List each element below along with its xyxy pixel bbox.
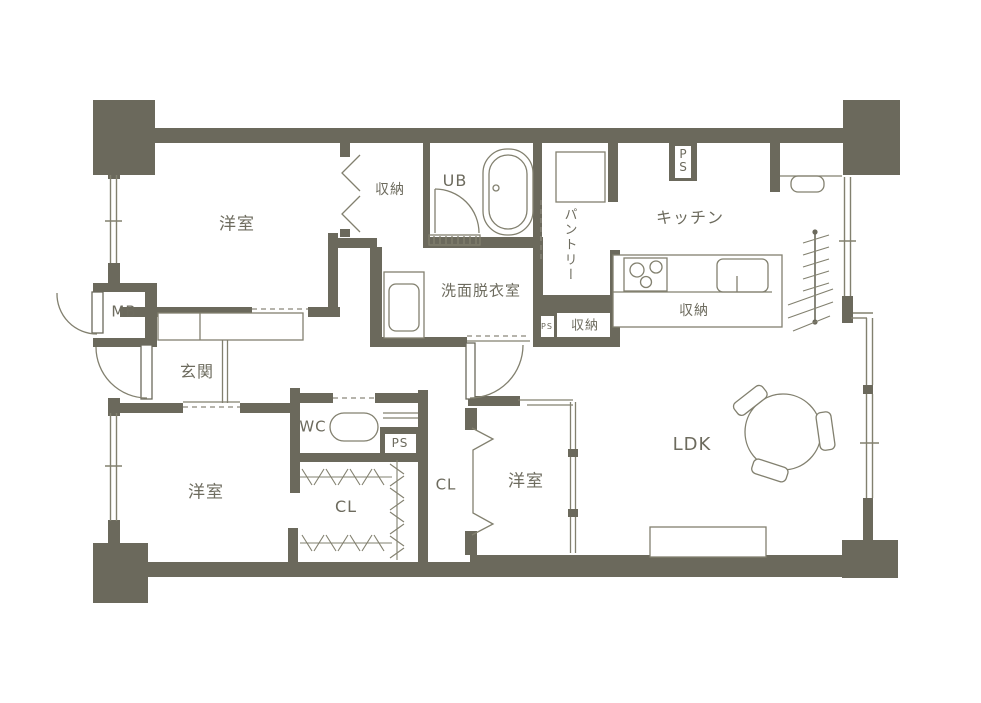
label-closet-walkin: CL	[335, 499, 357, 515]
label-storage-hall: 収納	[571, 320, 599, 333]
washing-machine-pan	[384, 272, 424, 338]
entrance-door	[96, 345, 152, 399]
ldk-door	[466, 343, 523, 399]
label-pipe-shaft-wc: PS	[392, 437, 409, 449]
label-ldk: LDK	[673, 436, 712, 454]
label-bedroom-nw: 洋室	[219, 217, 255, 234]
label-meter-box: MB	[111, 305, 136, 320]
interior-walls	[93, 140, 782, 568]
column-top-left	[93, 100, 155, 175]
sliding-door-s-bedroom	[518, 400, 573, 405]
label-bedroom-sw: 洋室	[188, 485, 224, 502]
label-pantry: パントリー	[563, 208, 576, 283]
ldk-furniture	[650, 383, 836, 557]
floor-plan-drawing	[0, 0, 981, 703]
folding-door-s-closet	[472, 428, 493, 535]
label-unit-bath: UB	[443, 173, 468, 189]
sliding-partition-ldk	[568, 402, 578, 553]
window-nw-bedroom	[105, 175, 122, 263]
window-ldk-right	[851, 313, 879, 498]
refrigerator-space	[556, 152, 605, 202]
sliding-door-sw-bedroom	[183, 402, 240, 407]
wall-right-seg	[863, 498, 873, 542]
label-storage-counter: 収納	[679, 304, 709, 318]
label-wc: WC	[299, 420, 326, 435]
hanging-screen	[788, 229, 833, 331]
label-pipe-shaft-top: PS	[677, 148, 689, 174]
label-storage-nw: 収納	[375, 183, 405, 197]
meter-box-door	[57, 292, 103, 334]
wall-top	[148, 128, 843, 143]
folding-door-nw-storage	[342, 155, 360, 232]
bathtub	[483, 149, 533, 235]
column-top-right	[843, 100, 900, 175]
shoe-cabinet	[158, 313, 303, 340]
label-entrance: 玄関	[180, 364, 214, 380]
wall-left-seg	[108, 263, 120, 285]
label-bedroom-s: 洋室	[508, 474, 544, 491]
label-pipe-shaft-mid: PS	[541, 323, 553, 331]
wall-right-window-divider	[863, 385, 873, 394]
window-sw-bedroom	[105, 413, 122, 521]
label-closet-s: CL	[436, 478, 457, 493]
toilet	[330, 413, 378, 441]
wall-right-seg	[842, 296, 853, 323]
label-washroom: 洗面脱衣室	[441, 284, 521, 299]
column-bottom-left	[93, 543, 148, 603]
label-kitchen: キッチン	[656, 210, 724, 226]
sliding-door-washroom	[467, 336, 530, 341]
wall-left-seg	[108, 520, 120, 550]
range-hood	[791, 176, 824, 192]
unit-bath-door	[429, 189, 480, 245]
floor-plan: 洋室 洋室 洋室 LDK キッチン パントリー 洗面脱衣室 UB WC 玄関 M…	[0, 0, 981, 703]
window-kitchen-right	[839, 177, 856, 296]
tv-board	[650, 527, 766, 557]
